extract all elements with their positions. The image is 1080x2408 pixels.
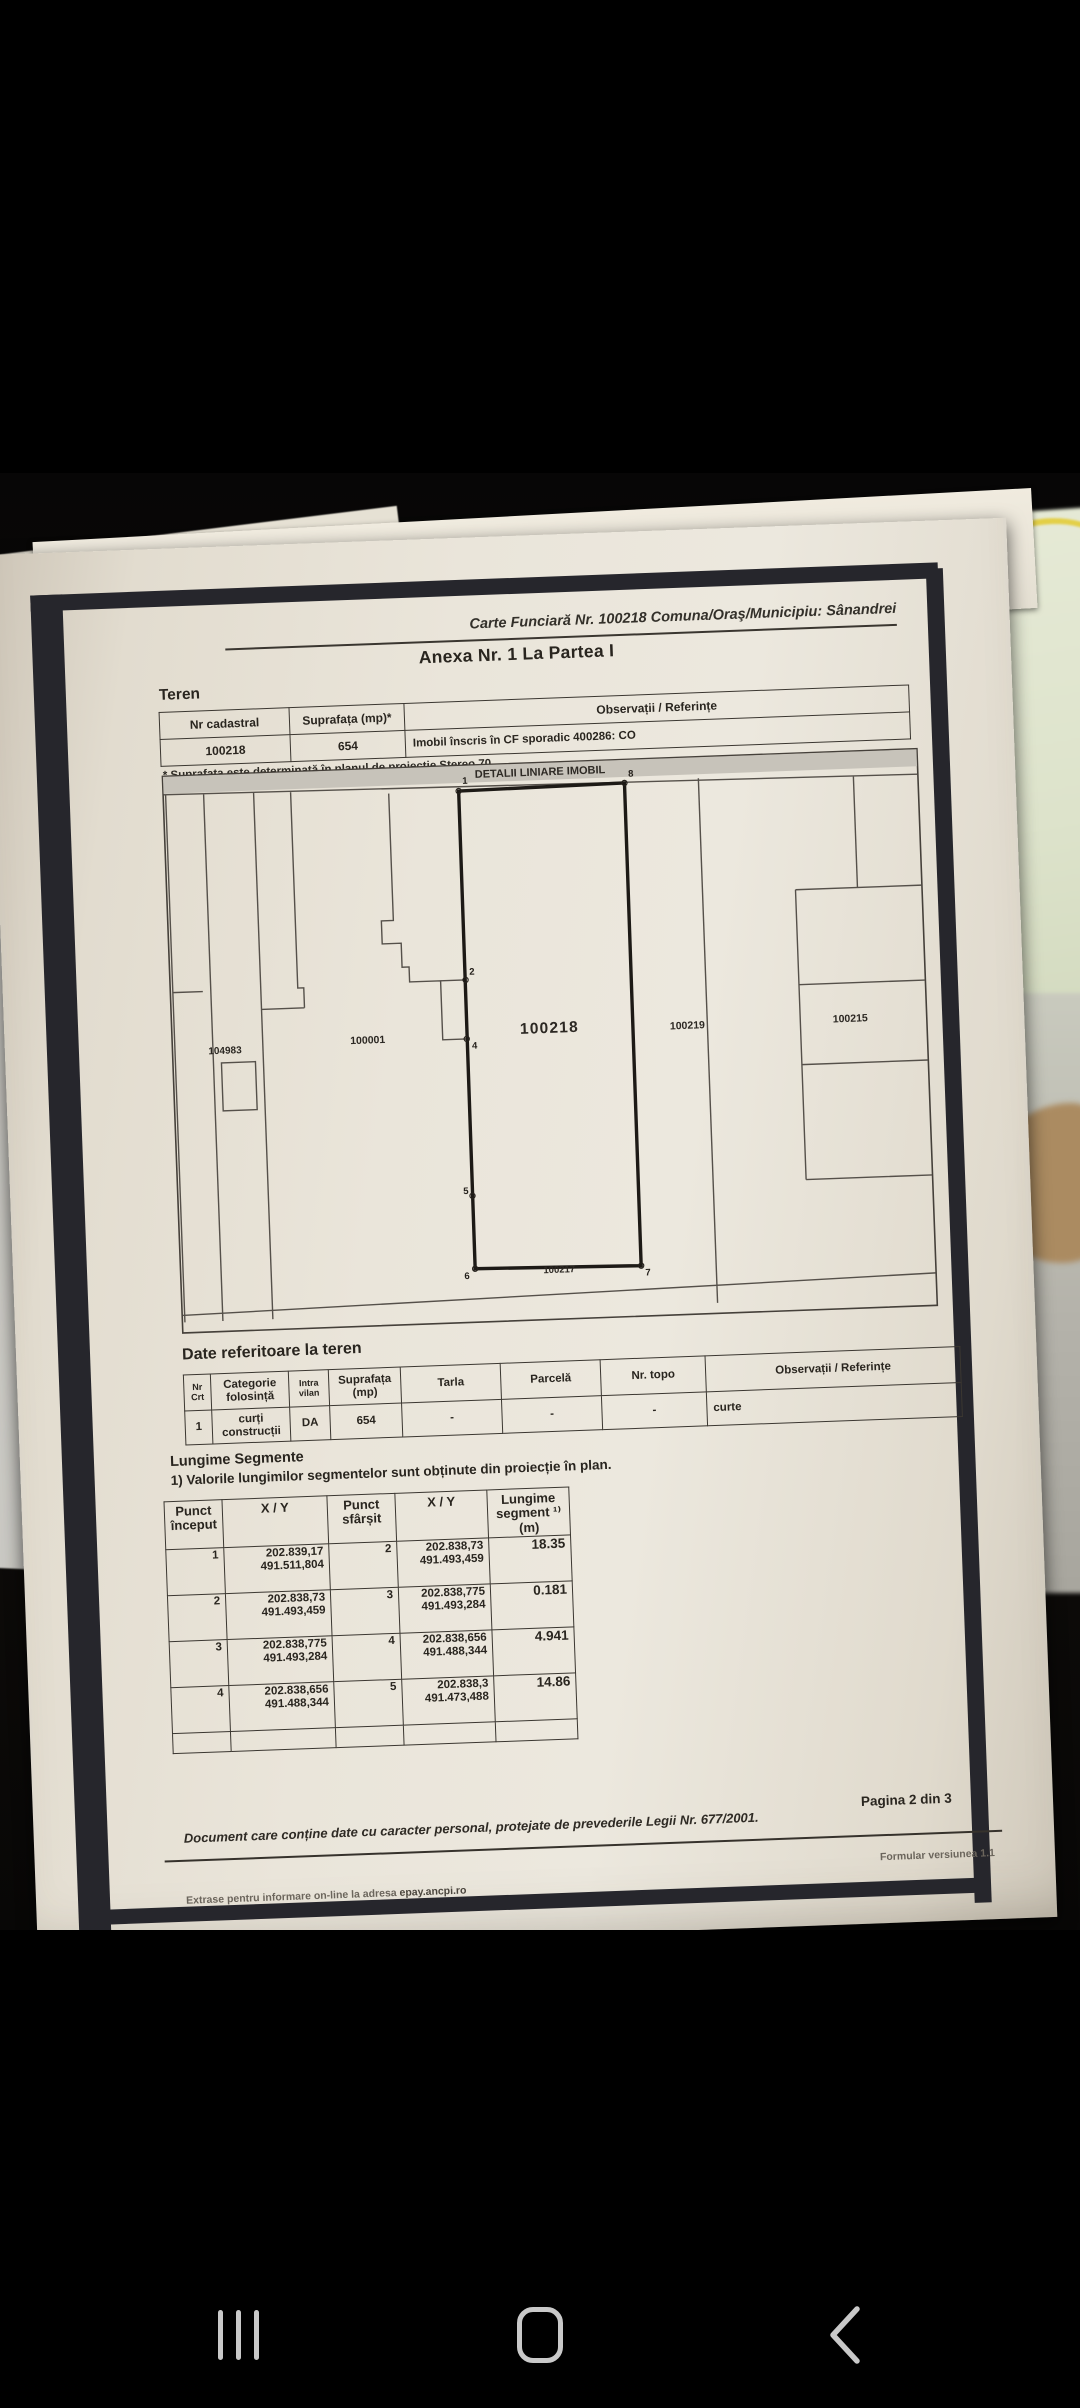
col-header-tarla: Tarla	[400, 1363, 501, 1403]
cell-xy-end: 202.838,656491.488,344	[400, 1630, 494, 1679]
home-button[interactable]	[460, 2270, 620, 2400]
col-header-nr-crt: Nr Crt	[183, 1374, 211, 1411]
phone-screen: Carte Funciară Nr. 100218 Comuna/Oraş/Mu…	[0, 0, 1080, 2408]
cell-length: 4.941	[492, 1627, 576, 1676]
cell-p-start: 4	[171, 1685, 231, 1733]
label-parcel-100219: 100219	[670, 1019, 706, 1032]
plan-drawing: DETALII LINIARE IMOBIL	[161, 747, 939, 1334]
label-parcel-100218: 100218	[520, 1019, 580, 1038]
col-header-lungime: Lungime segment ¹⁾ (m)	[487, 1487, 571, 1538]
cell-p-start: 1	[166, 1548, 226, 1596]
cell-nr-topo: -	[601, 1392, 707, 1430]
col-header-parcela: Parcelă	[500, 1360, 601, 1400]
cell-p-end: 3	[330, 1587, 400, 1635]
point-2: 2	[469, 967, 475, 978]
date-teren-table: Nr Crt Categorie folosință Intra vilan S…	[183, 1346, 963, 1445]
point-6: 6	[464, 1271, 470, 1282]
cell-xy-start: 202.838,73491.493,459	[225, 1590, 332, 1640]
col-header-categorie: Categorie folosință	[210, 1371, 289, 1410]
parcel-boundaries	[164, 767, 937, 1322]
label-parcel-104983: 104983	[208, 1045, 242, 1057]
form-version: Formular versiunea 1.1	[880, 1847, 995, 1863]
segments-table: Punct început X / Y Punct sfârșit X / Y …	[163, 1486, 578, 1754]
cell-nr-crt: 1	[185, 1410, 213, 1445]
lungime-segmente-heading: Lungime Segmente	[170, 1449, 304, 1470]
cell-xy-end: 202.838,775491.493,284	[398, 1584, 492, 1633]
page-number: Pagina 2 din 3	[861, 1791, 952, 1809]
recents-icon	[218, 2310, 259, 2360]
parcel-labels: 104983 100001 100218 100219 100215 10021…	[208, 1008, 877, 1288]
cell-length: 18.35	[489, 1535, 573, 1584]
cell-p-end: 2	[329, 1541, 399, 1589]
cell-xy-end: 202.838,73491.493,459	[397, 1538, 491, 1587]
home-icon	[517, 2307, 563, 2363]
extras-site: epay.ancpi.ro	[399, 1884, 466, 1898]
anexa-title: Anexa Nr. 1 La Partea I	[418, 640, 614, 668]
cell-tarla: -	[402, 1399, 503, 1437]
back-button[interactable]	[765, 2270, 925, 2400]
col-header-suprafata: Suprafața (mp)*	[289, 703, 405, 734]
cell-intravilan: DA	[290, 1406, 331, 1441]
label-parcel-100215: 100215	[833, 1012, 869, 1025]
cell-p-start: 2	[167, 1593, 227, 1641]
back-chevron-icon	[825, 2304, 865, 2366]
point-4: 4	[472, 1040, 478, 1051]
recents-button[interactable]	[158, 2270, 318, 2400]
col-header-suprafata-mp: Suprafața (mp)	[328, 1367, 401, 1406]
cell-suprafata-mp: 654	[330, 1403, 403, 1440]
col-header-punct-inceput: Punct început	[164, 1500, 224, 1550]
point-5: 5	[463, 1186, 469, 1197]
col-header-punct-sfarsit: Punct sfârșit	[327, 1493, 397, 1543]
cell-p-start: 3	[169, 1639, 229, 1687]
col-header-nr-topo: Nr. topo	[600, 1356, 706, 1396]
label-parcel-100001: 100001	[350, 1034, 386, 1047]
cell-parcela: -	[501, 1396, 602, 1434]
extras-text: Extrase pentru informare on-line la adre…	[186, 1887, 400, 1907]
cell-xy-start: 202.839,17491.511,804	[224, 1544, 331, 1594]
cadastral-plan: DETALII LINIARE IMOBIL	[161, 747, 939, 1334]
cell-p-end: 4	[332, 1633, 402, 1681]
cell-categorie: curți construcții	[212, 1407, 291, 1444]
cell-p-end: 5	[334, 1679, 404, 1727]
extras-note: Extrase pentru informare on-line la adre…	[186, 1884, 467, 1906]
cell-length: 0.181	[490, 1581, 574, 1630]
date-teren-heading: Date referitoare la teren	[182, 1340, 362, 1365]
cell-suprafata: 654	[290, 730, 406, 761]
point-8: 8	[628, 769, 634, 780]
col-header-intravilan: Intra vilan	[288, 1370, 329, 1407]
document-photo: Carte Funciară Nr. 100218 Comuna/Oraş/Mu…	[0, 473, 1080, 1930]
cell-xy-end: 202.838,3491.473,488	[402, 1676, 496, 1725]
cell-length: 14.86	[494, 1673, 578, 1722]
cell-nr-cadastral: 100218	[160, 735, 291, 767]
label-road-100217: 100217	[543, 1264, 575, 1276]
point-7: 7	[645, 1267, 651, 1278]
android-navbar	[0, 2270, 1080, 2408]
col-header-xy-end: X / Y	[395, 1490, 489, 1541]
document-page: Carte Funciară Nr. 100218 Comuna/Oraş/Mu…	[0, 518, 1057, 1930]
cell-xy-start: 202.838,775491.493,284	[227, 1636, 334, 1686]
teren-heading: Teren	[159, 685, 201, 704]
col-header-xy-start: X / Y	[222, 1496, 329, 1548]
cell-xy-start: 202.838,656491.488,344	[229, 1682, 336, 1732]
